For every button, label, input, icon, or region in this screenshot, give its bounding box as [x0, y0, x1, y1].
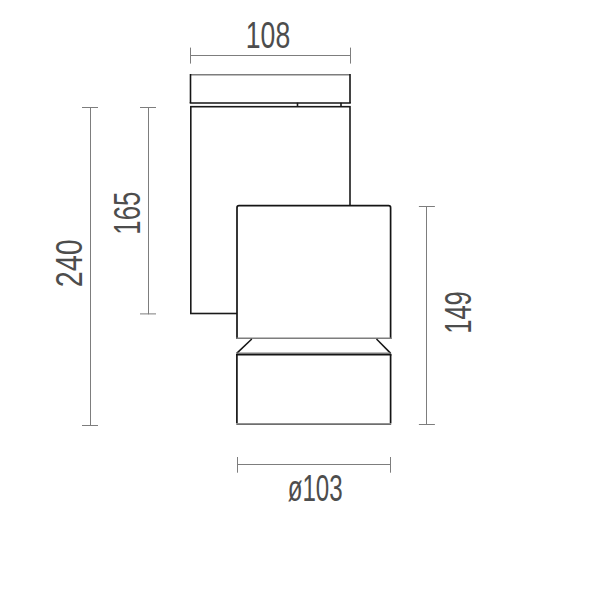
svg-text:240: 240	[49, 239, 90, 287]
svg-text:108: 108	[246, 15, 290, 56]
svg-text:165: 165	[107, 192, 148, 235]
svg-text:149: 149	[438, 291, 479, 334]
svg-text:ø103: ø103	[288, 468, 343, 509]
